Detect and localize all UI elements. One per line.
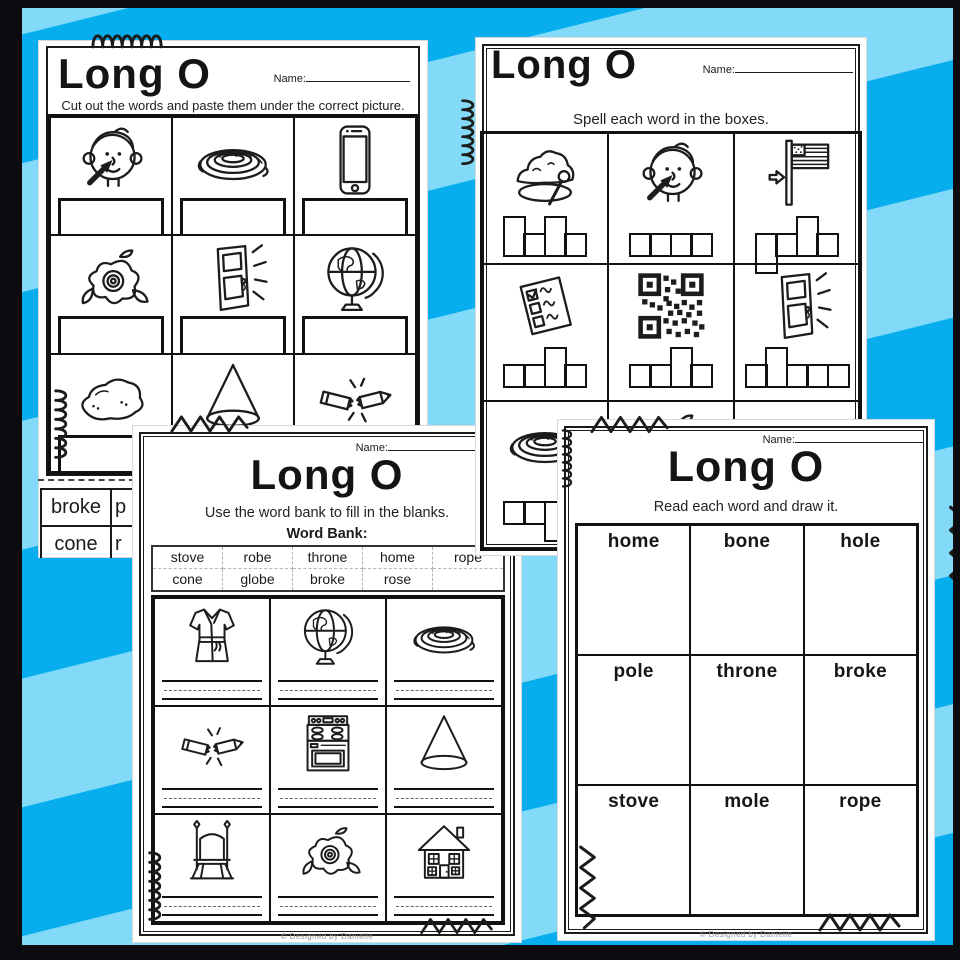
coil-squiggle-decoration	[90, 29, 168, 51]
zigzag-squiggle-decoration	[575, 845, 599, 931]
bank-word: cone	[153, 569, 223, 590]
grid-cell	[386, 814, 502, 922]
zigzag-squiggle-decoration	[816, 910, 904, 936]
name-field: Name:	[703, 63, 853, 76]
broken-pencil-icon	[308, 359, 402, 435]
zigzag-squiggle-decoration	[590, 412, 670, 438]
handwriting-lines	[394, 788, 494, 808]
handwriting-lines	[278, 680, 378, 700]
word-card: cone	[41, 526, 111, 558]
letter-boxes	[629, 346, 714, 388]
globe-icon	[281, 603, 375, 669]
rope-icon	[397, 603, 491, 669]
grid-cell	[482, 264, 608, 401]
grid-cell	[154, 598, 270, 706]
worksheet-read-and-draw: Name: Long O Read each word and draw it.…	[557, 419, 935, 941]
name-blank-line	[795, 433, 923, 443]
instructions: Spell each word in the boxes.	[475, 111, 867, 128]
paste-box	[302, 198, 408, 235]
letter-boxes	[629, 215, 714, 257]
globe-icon	[308, 240, 402, 316]
house-icon	[397, 819, 491, 885]
grid-cell	[154, 814, 270, 922]
stone-icon	[64, 359, 158, 435]
instructions: Use the word bank to fill in the blanks.	[132, 505, 522, 521]
draw-cell: home	[577, 525, 690, 655]
letter-boxes	[503, 346, 588, 388]
rose-icon	[281, 819, 375, 885]
paste-box	[302, 316, 408, 353]
grid-cell	[154, 706, 270, 814]
page-title: Long O	[132, 451, 522, 499]
draw-grid: home bone hole pole throne broke stove m…	[575, 523, 919, 917]
grid-cell	[50, 235, 172, 353]
grid-cell	[608, 133, 734, 264]
handwriting-lines	[162, 788, 262, 808]
handwriting-lines	[278, 896, 378, 916]
robe-icon	[165, 603, 259, 669]
draw-cell: bone	[690, 525, 803, 655]
bank-word: stove	[153, 547, 223, 569]
coil-squiggle-decoration	[146, 850, 166, 926]
ballot-vote-icon	[498, 268, 592, 344]
stove-icon	[281, 711, 375, 777]
instructions: Cut out the words and paste them under t…	[48, 98, 418, 113]
grid-cell	[386, 706, 502, 814]
name-field: Name:	[274, 72, 410, 85]
name-label: Name:	[703, 64, 735, 76]
handwriting-lines	[394, 896, 494, 916]
draw-cell: broke	[804, 655, 917, 785]
handwriting-lines	[394, 680, 494, 700]
paste-box	[58, 198, 164, 235]
grid-cell	[734, 133, 860, 264]
broken-pencil-icon	[165, 711, 259, 777]
grid-cell	[270, 706, 386, 814]
bank-word: broke	[293, 569, 363, 590]
rose-icon	[64, 240, 158, 316]
rope-icon	[186, 122, 280, 198]
instructions: Read each word and draw it.	[557, 499, 935, 515]
grid-cell	[386, 598, 502, 706]
paste-box	[180, 198, 286, 235]
throne-icon	[165, 819, 259, 885]
name-label: Name:	[274, 73, 306, 85]
draw-cell: rope	[804, 785, 917, 915]
page-title: Long O	[491, 43, 637, 88]
picture-grid	[151, 595, 505, 925]
grid-cell	[172, 235, 294, 353]
bank-word: rose	[363, 569, 433, 590]
hole-icon	[498, 137, 592, 213]
phone-icon	[308, 122, 402, 198]
flag-pole-icon	[750, 137, 844, 213]
draw-cell: mole	[690, 785, 803, 915]
word-bank-table: stove robe throne home rope cone globe b…	[151, 545, 505, 592]
zigzag-squiggle-decoration	[945, 505, 960, 601]
page-title: Long O	[58, 50, 211, 98]
bank-word	[433, 569, 503, 590]
word-bank-label: Word Bank:	[132, 526, 522, 542]
grid-cell	[172, 117, 294, 235]
draw-cell: pole	[577, 655, 690, 785]
cone-icon	[397, 711, 491, 777]
letter-boxes	[755, 215, 840, 257]
handwriting-lines	[278, 788, 378, 808]
paste-box	[180, 316, 286, 353]
zigzag-squiggle-decoration	[170, 412, 250, 437]
page-title: Long O	[557, 443, 935, 492]
draw-cell: throne	[690, 655, 803, 785]
grid-cell	[270, 814, 386, 922]
grid-cell	[482, 133, 608, 264]
coil-squiggle-decoration	[560, 428, 576, 492]
name-blank-line	[306, 72, 410, 82]
bank-word: robe	[223, 547, 293, 569]
grid-cell	[608, 264, 734, 401]
grid-cell	[294, 235, 416, 353]
nose-icon	[64, 122, 158, 198]
grid-cell	[734, 264, 860, 401]
coil-squiggle-decoration	[52, 388, 72, 464]
zigzag-squiggle-decoration	[416, 915, 498, 938]
name-blank-line	[735, 63, 853, 73]
grid-cell	[294, 117, 416, 235]
door-close-icon	[750, 268, 844, 344]
bank-word: home	[363, 547, 433, 569]
door-close-icon	[186, 240, 280, 316]
paste-box	[58, 316, 164, 353]
worksheet-preview: Long O Name: Cut out the words and paste…	[0, 0, 960, 960]
worksheet-word-bank: Name: Long O Use the word bank to fill i…	[132, 425, 522, 943]
nose-icon	[624, 137, 718, 213]
qr-code-icon	[624, 268, 718, 344]
bank-word: globe	[223, 569, 293, 590]
grid-cell	[270, 598, 386, 706]
draw-cell: hole	[804, 525, 917, 655]
letter-boxes	[745, 346, 850, 388]
word-card: broke	[41, 489, 111, 526]
grid-cell	[50, 117, 172, 235]
handwriting-lines	[162, 680, 262, 700]
letter-boxes	[503, 215, 588, 257]
handwriting-lines	[162, 896, 262, 916]
bank-word: throne	[293, 547, 363, 569]
